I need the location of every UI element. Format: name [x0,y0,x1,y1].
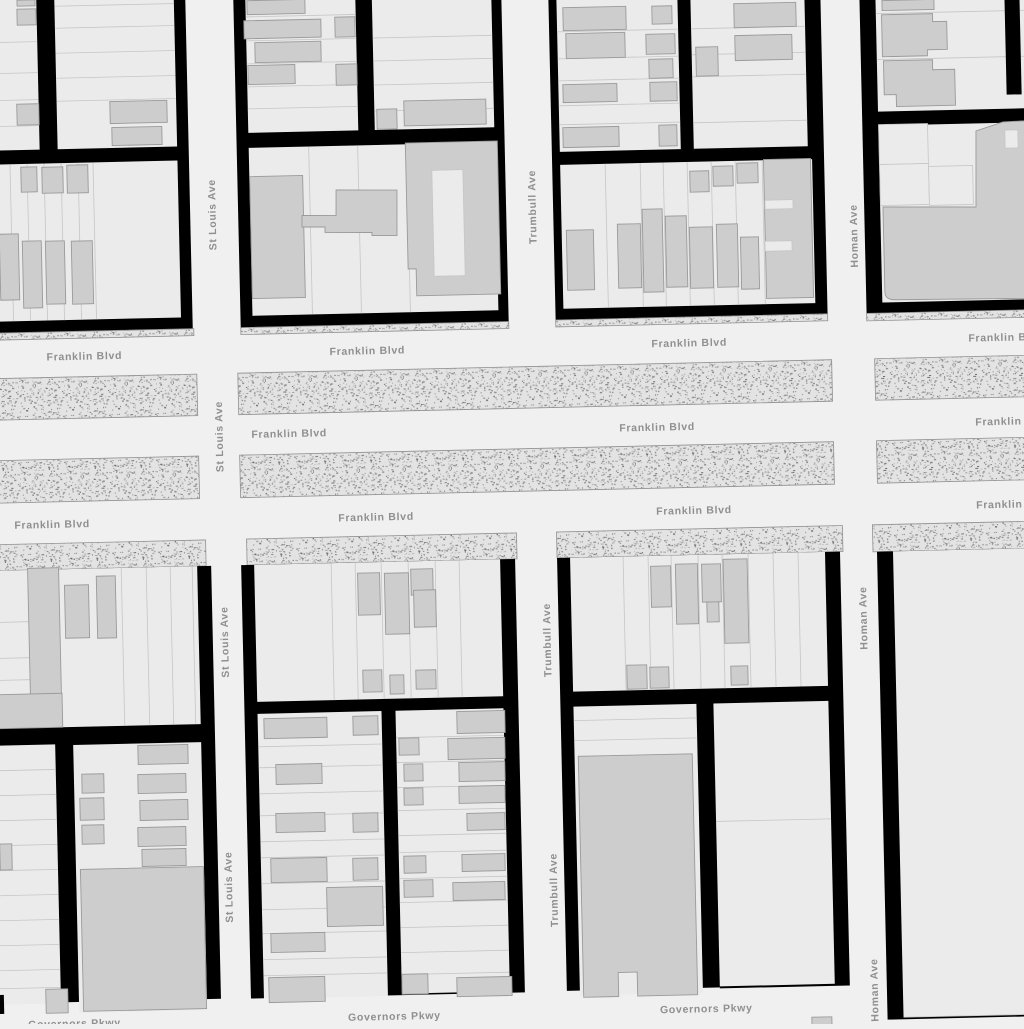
svg-text:Governors Pkwy: Governors Pkwy [28,1017,121,1024]
svg-text:Governors Pkwy: Governors Pkwy [348,1010,441,1024]
svg-text:Franklin Blvd: Franklin Blvd [656,504,732,518]
svg-text:Homan Ave: Homan Ave [848,204,861,268]
svg-text:Franklin Blvd: Franklin Blvd [975,415,1024,429]
svg-text:Trumbull Ave: Trumbull Ave [541,603,555,677]
svg-text:Franklin Blvd: Franklin Blvd [251,427,327,441]
svg-text:St Louis Ave: St Louis Ave [213,401,227,472]
svg-text:Homan Ave: Homan Ave [868,958,881,1022]
svg-text:Franklin Blvd: Franklin Blvd [651,337,727,351]
svg-text:Franklin Blvd: Franklin Blvd [976,498,1024,512]
svg-text:Homan Ave: Homan Ave [857,586,870,650]
svg-text:Franklin Blvd: Franklin Blvd [329,344,405,358]
svg-text:St Louis Ave: St Louis Ave [218,606,232,677]
svg-text:Franklin Blvd: Franklin Blvd [46,350,122,364]
svg-text:St Louis Ave: St Louis Ave [222,851,236,922]
svg-text:Governors Pkwy: Governors Pkwy [660,1002,753,1016]
svg-text:Franklin Blvd: Franklin Blvd [968,331,1024,345]
svg-text:St Louis Ave: St Louis Ave [206,179,220,250]
svg-text:Franklin Blvd: Franklin Blvd [338,511,414,525]
svg-text:Trumbull Ave: Trumbull Ave [547,853,561,927]
svg-text:Franklin Blvd: Franklin Blvd [619,421,695,435]
svg-text:Trumbull Ave: Trumbull Ave [526,170,540,244]
svg-text:Franklin Blvd: Franklin Blvd [14,518,90,532]
